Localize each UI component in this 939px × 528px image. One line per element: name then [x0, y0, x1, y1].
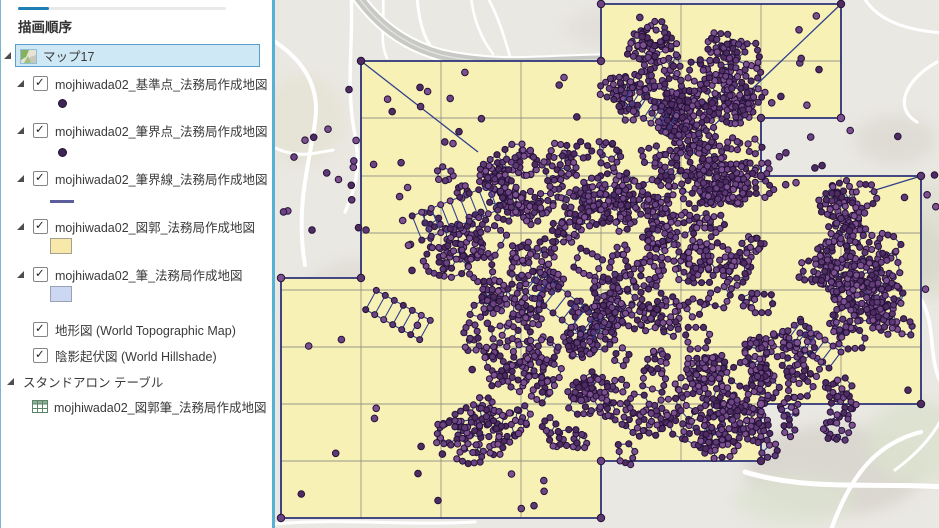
layer-checkbox[interactable]: [33, 267, 48, 282]
app-window: 描画順序 マップ17 mojhiwada02_基準点_法務局作成地図: [0, 0, 939, 528]
layer-row-topographic[interactable]: 地形図 (World Topographic Map): [1, 318, 272, 340]
layer-label: mojhiwada02_筆界点_法務局作成地図: [55, 121, 268, 140]
pane-title: 描画順序: [18, 16, 72, 36]
expander-icon[interactable]: [17, 127, 24, 134]
layer-checkbox[interactable]: [33, 171, 48, 186]
expander-icon[interactable]: [4, 52, 11, 59]
layer-label: 陰影起伏図 (World Hillshade): [55, 346, 217, 365]
standalone-table-row[interactable]: mojhiwada02_図郭筆_法務局作成地図: [1, 395, 272, 417]
horizontal-scrollbar[interactable]: [18, 7, 226, 10]
map-thumbnail-icon: [20, 49, 37, 64]
standalone-tables-label: スタンドアロン テーブル: [23, 372, 163, 391]
fill-symbol-swatch[interactable]: [50, 238, 72, 254]
layer-checkbox[interactable]: [33, 123, 48, 138]
contents-pane: 描画順序 マップ17 mojhiwada02_基準点_法務局作成地図: [0, 0, 272, 528]
layer-label: 地形図 (World Topographic Map): [55, 320, 236, 339]
line-symbol-swatch[interactable]: [50, 200, 74, 203]
map-group-label: マップ17: [43, 46, 94, 65]
layer-checkbox[interactable]: [33, 76, 48, 91]
layer-row-zukaku[interactable]: mojhiwada02_図郭_法務局作成地図: [1, 215, 272, 237]
layer-row-hillshade[interactable]: 陰影起伏図 (World Hillshade): [1, 344, 272, 366]
table-icon: [32, 400, 48, 413]
layer-checkbox[interactable]: [33, 219, 48, 234]
layer-label: mojhiwada02_基準点_法務局作成地図: [55, 74, 268, 93]
table-label: mojhiwada02_図郭筆_法務局作成地図: [54, 397, 267, 416]
map-canvas[interactable]: [275, 0, 939, 528]
layer-label: mojhiwada02_筆_法務局作成地図: [55, 265, 243, 284]
point-symbol-swatch[interactable]: [58, 148, 67, 157]
map-view[interactable]: [275, 0, 939, 528]
layer-label: mojhiwada02_図郭_法務局作成地図: [55, 217, 255, 236]
layer-label: mojhiwada02_筆界線_法務局作成地図: [55, 169, 268, 188]
layer-row-hikkaisen[interactable]: mojhiwada02_筆界線_法務局作成地図: [1, 167, 272, 189]
layer-row-hikkaiten[interactable]: mojhiwada02_筆界点_法務局作成地図: [1, 119, 272, 141]
expander-icon[interactable]: [17, 271, 24, 278]
expander-icon[interactable]: [17, 223, 24, 230]
standalone-tables-group[interactable]: スタンドアロン テーブル: [1, 370, 272, 392]
fill-symbol-swatch[interactable]: [50, 286, 72, 302]
layer-checkbox[interactable]: [33, 322, 48, 337]
tree-row-map-group[interactable]: マップ17: [1, 44, 272, 67]
point-symbol-swatch[interactable]: [58, 99, 67, 108]
expander-icon[interactable]: [17, 80, 24, 87]
layer-row-fude[interactable]: mojhiwada02_筆_法務局作成地図: [1, 263, 272, 285]
expander-icon[interactable]: [17, 175, 24, 182]
scrollbar-thumb[interactable]: [18, 7, 49, 10]
map-group-item[interactable]: マップ17: [15, 44, 260, 67]
layer-checkbox[interactable]: [33, 348, 48, 363]
layer-row-kijunten[interactable]: mojhiwada02_基準点_法務局作成地図: [1, 72, 272, 94]
expander-icon[interactable]: [7, 378, 14, 385]
